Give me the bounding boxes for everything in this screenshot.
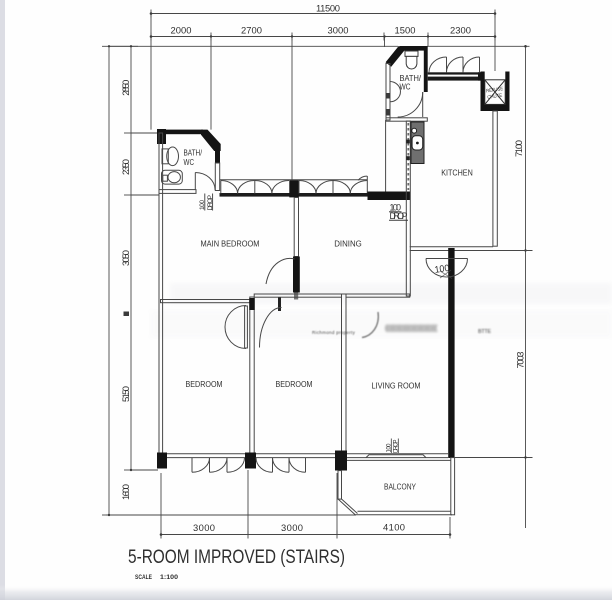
svg-text:1:100: 1:100 [160,574,178,581]
svg-text:11500: 11500 [316,3,340,14]
svg-text:DINING: DINING [334,240,362,249]
svg-text:1600: 1600 [120,484,131,500]
svg-text:WC: WC [400,83,411,92]
svg-text:3000: 3000 [328,25,349,36]
svg-text:2850: 2850 [120,80,131,96]
svg-text:BEDROOM: BEDROOM [186,380,223,389]
svg-text:BATH/: BATH/ [184,149,203,158]
svg-text:BTTE: BTTE [478,329,491,335]
svg-text:1500: 1500 [395,25,416,36]
svg-text:5150: 5150 [120,386,131,402]
svg-text:SCALE: SCALE [135,574,152,581]
svg-text:LIVING ROOM: LIVING ROOM [372,382,421,391]
svg-text:5-ROOM IMPROVED (STAIRS): 5-ROOM IMPROVED (STAIRS) [128,547,345,568]
svg-text:MAIN BEDROOM: MAIN BEDROOM [201,240,260,249]
svg-text:4100: 4100 [383,522,405,533]
svg-text:2300: 2300 [450,25,471,36]
svg-text:3000: 3000 [281,522,303,533]
svg-text:7100: 7100 [513,140,524,157]
svg-text:BEDROOM: BEDROOM [276,380,313,389]
svg-text:BALCONY: BALCONY [384,483,416,492]
svg-text:((((((((((((((((((((((((: (((((((((((((((((((((((( [385,324,438,333]
svg-text:2000: 2000 [171,25,192,36]
svg-text:DROP: DROP [390,211,408,221]
svg-text:7003: 7003 [515,352,526,369]
svg-text:WC: WC [184,158,195,167]
svg-text:KITCHEN: KITCHEN [441,169,473,178]
svg-text:100: 100 [434,262,450,275]
svg-text:Richmond property: Richmond property [312,330,356,335]
svg-text:3000: 3000 [193,522,215,533]
svg-text:3050: 3050 [120,250,131,266]
svg-text:2350: 2350 [120,159,131,175]
svg-text:2700: 2700 [241,25,262,36]
